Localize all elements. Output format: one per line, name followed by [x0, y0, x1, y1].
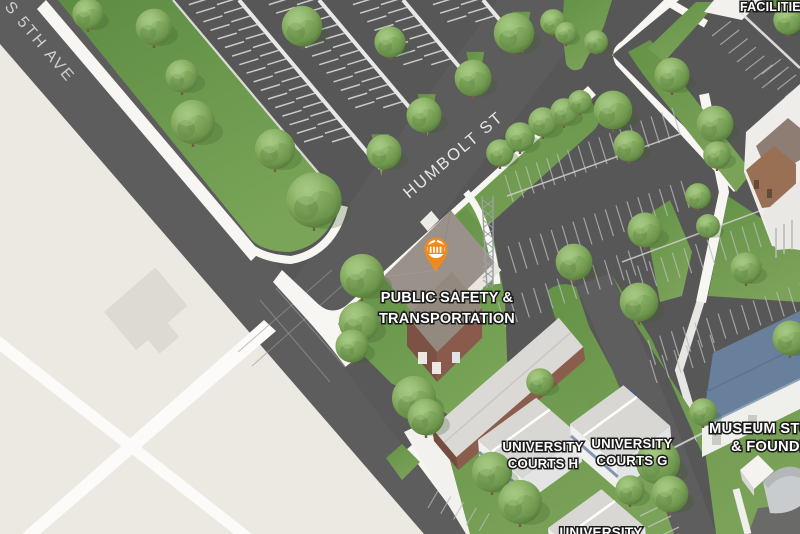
svg-text:UNIVERSITY: UNIVERSITY: [591, 436, 672, 451]
svg-text:UNIVERSITY: UNIVERSITY: [559, 525, 642, 534]
svg-text:UNIVERSITY: UNIVERSITY: [502, 439, 583, 454]
svg-text:FACILITIES: FACILITIES: [740, 0, 800, 14]
svg-text:TRANSPORTATION: TRANSPORTATION: [379, 311, 515, 327]
svg-text:PUBLIC SAFETY &: PUBLIC SAFETY &: [381, 290, 514, 306]
svg-text:MUSEUM STORAGE: MUSEUM STORAGE: [709, 421, 800, 437]
svg-text:& FOUNDRY: & FOUNDRY: [731, 439, 800, 455]
svg-text:COURTS G: COURTS G: [596, 453, 667, 468]
svg-text:COURTS H: COURTS H: [508, 456, 578, 471]
